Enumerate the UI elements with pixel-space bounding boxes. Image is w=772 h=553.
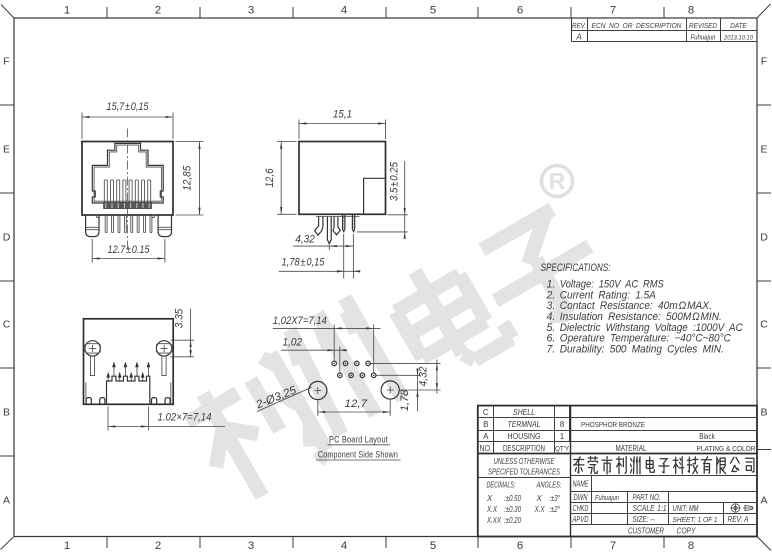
svg-text:15,1: 15,1 bbox=[333, 109, 352, 121]
svg-text:12,7: 12,7 bbox=[345, 398, 368, 410]
svg-text:A: A bbox=[760, 495, 767, 507]
svg-text:ECN NO OR DESCRIPTION: ECN NO OR DESCRIPTION bbox=[592, 21, 683, 30]
svg-text:B: B bbox=[760, 407, 767, 419]
svg-text:F: F bbox=[761, 56, 767, 68]
svg-text:1: 1 bbox=[64, 5, 70, 17]
svg-text:SCALE 1:1: SCALE 1:1 bbox=[633, 504, 667, 513]
svg-text:CHKD: CHKD bbox=[573, 504, 589, 513]
svg-text::±3°: :±3° bbox=[549, 494, 560, 503]
svg-text:R: R bbox=[549, 168, 566, 194]
svg-text:1,02X7=7,14: 1,02X7=7,14 bbox=[273, 315, 327, 327]
svg-text:SIZE: --: SIZE: -- bbox=[633, 515, 655, 524]
svg-text:X.XX: X.XX bbox=[486, 516, 501, 525]
svg-text::±2°: :±2° bbox=[549, 505, 560, 514]
svg-text:A: A bbox=[3, 495, 10, 507]
svg-text:SPECIFICATIONS:: SPECIFICATIONS: bbox=[541, 262, 611, 274]
svg-text:X.X: X.X bbox=[534, 505, 545, 514]
svg-text:DECIMALS:: DECIMALS: bbox=[487, 481, 516, 490]
svg-text:8: 8 bbox=[688, 5, 694, 17]
svg-text:3: 3 bbox=[248, 5, 254, 17]
svg-text:D: D bbox=[3, 232, 11, 244]
svg-text:2: 2 bbox=[155, 5, 161, 17]
svg-text:1.02×7=7,14: 1.02×7=7,14 bbox=[158, 412, 212, 424]
svg-text:5: 5 bbox=[430, 5, 436, 17]
svg-text:C: C bbox=[3, 319, 11, 331]
svg-text:3.5 ± 0.25: 3.5 ± 0.25 bbox=[389, 161, 401, 201]
svg-text:7: 7 bbox=[610, 5, 616, 17]
svg-text:4: 4 bbox=[341, 540, 347, 552]
svg-text:Durability: 500 Mating Cycles: Durability: 500 Mating Cycles MIN. bbox=[560, 343, 724, 355]
svg-text:MATERIAL: MATERIAL bbox=[616, 444, 647, 453]
svg-text:8: 8 bbox=[688, 540, 694, 552]
svg-text:B: B bbox=[483, 420, 488, 429]
svg-text:1,78 ± 0,15: 1,78 ± 0,15 bbox=[282, 257, 326, 269]
svg-text:8: 8 bbox=[560, 420, 565, 429]
svg-text:12.7 ± 0.15: 12.7 ± 0.15 bbox=[108, 244, 151, 256]
svg-text:DWN: DWN bbox=[574, 493, 588, 502]
svg-text:6: 6 bbox=[517, 540, 523, 552]
svg-text:2: 2 bbox=[155, 540, 161, 552]
svg-text:3: 3 bbox=[248, 540, 254, 552]
svg-text:DATE: DATE bbox=[730, 21, 747, 30]
svg-text:PHOSPHOR BRONZE: PHOSPHOR BRONZE bbox=[581, 420, 645, 429]
svg-text:DESCRIPTION: DESCRIPTION bbox=[503, 444, 545, 453]
svg-text:X: X bbox=[536, 494, 543, 503]
svg-text:1,78: 1,78 bbox=[399, 389, 411, 411]
svg-text:APVD: APVD bbox=[572, 515, 589, 524]
svg-text:C: C bbox=[760, 319, 768, 331]
svg-text:1: 1 bbox=[64, 540, 70, 552]
svg-text:C: C bbox=[483, 408, 489, 417]
svg-text:Component Side Shown: Component Side Shown bbox=[318, 449, 398, 459]
svg-text:15,7 ± 0,15: 15,7 ± 0,15 bbox=[107, 101, 150, 113]
svg-text:PART NO.: PART NO. bbox=[633, 493, 661, 502]
svg-text:COPY: COPY bbox=[677, 527, 697, 536]
svg-text:3.35: 3.35 bbox=[173, 308, 185, 328]
svg-text:2013.10.10: 2013.10.10 bbox=[723, 35, 753, 42]
svg-text:REV.: REV. bbox=[572, 21, 586, 30]
svg-text:F: F bbox=[3, 56, 9, 68]
svg-text:TERMNAL: TERMNAL bbox=[508, 420, 541, 429]
svg-text:D: D bbox=[760, 232, 768, 244]
svg-text:4,32: 4,32 bbox=[417, 366, 429, 387]
svg-text::±0.20: :±0.20 bbox=[504, 516, 522, 525]
svg-text:E: E bbox=[3, 144, 10, 156]
svg-text:Fuhuajun: Fuhuajun bbox=[691, 35, 716, 42]
svg-text:5: 5 bbox=[430, 540, 436, 552]
svg-text:CUSTOMER: CUSTOMER bbox=[628, 527, 664, 536]
svg-text:X: X bbox=[486, 494, 493, 503]
svg-text:UNIT: MM: UNIT: MM bbox=[673, 504, 699, 513]
svg-text:ANGLES:: ANGLES: bbox=[536, 481, 562, 490]
svg-text:12,6: 12,6 bbox=[264, 168, 276, 188]
svg-text:PLATING & COLOR: PLATING & COLOR bbox=[697, 444, 756, 453]
svg-text::±0.30: :±0.30 bbox=[504, 505, 522, 514]
svg-text:7.: 7. bbox=[547, 343, 556, 355]
svg-text:SHELL: SHELL bbox=[513, 408, 535, 417]
svg-text:6: 6 bbox=[517, 5, 523, 17]
svg-text:HOUSING: HOUSING bbox=[508, 432, 541, 441]
svg-text:A: A bbox=[575, 33, 581, 42]
svg-text:Black: Black bbox=[699, 432, 715, 441]
svg-text:4: 4 bbox=[341, 5, 347, 17]
svg-text:A: A bbox=[483, 432, 489, 441]
svg-text::±0.50: :±0.50 bbox=[504, 494, 522, 503]
svg-text:X.X: X.X bbox=[486, 505, 497, 514]
svg-text:NO.: NO. bbox=[480, 444, 493, 453]
svg-text:SHEET: 1 OF 1: SHEET: 1 OF 1 bbox=[673, 515, 718, 524]
svg-text:QT'Y: QT'Y bbox=[555, 444, 569, 453]
svg-text:REV: A: REV: A bbox=[728, 515, 749, 524]
svg-text:E: E bbox=[760, 144, 767, 156]
svg-text:1: 1 bbox=[560, 432, 565, 441]
svg-text:REVISED: REVISED bbox=[689, 21, 718, 30]
svg-text:1,02: 1,02 bbox=[283, 336, 303, 348]
svg-text:NAME: NAME bbox=[573, 480, 590, 489]
svg-text:7: 7 bbox=[610, 540, 616, 552]
svg-text:PC Board Layout: PC Board Layout bbox=[329, 434, 388, 444]
svg-text:4,32: 4,32 bbox=[295, 234, 315, 246]
svg-text:SPECIFED TOLERANCES: SPECIFED TOLERANCES bbox=[488, 468, 561, 477]
svg-text:B: B bbox=[3, 407, 10, 419]
svg-text:Fuhuajun: Fuhuajun bbox=[595, 495, 619, 502]
svg-text:UNLESS OTHERWISE: UNLESS OTHERWISE bbox=[494, 457, 556, 466]
svg-text:12,85: 12,85 bbox=[182, 165, 194, 191]
